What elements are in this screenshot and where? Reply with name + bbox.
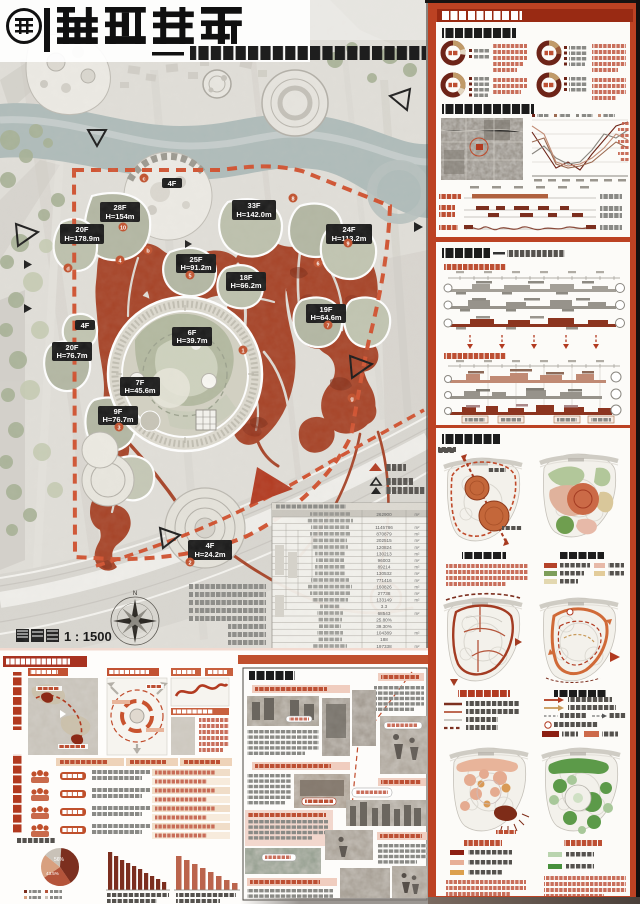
svg-text:43.5%: 43.5% xyxy=(46,871,59,876)
svg-text:56%: 56% xyxy=(54,857,65,863)
